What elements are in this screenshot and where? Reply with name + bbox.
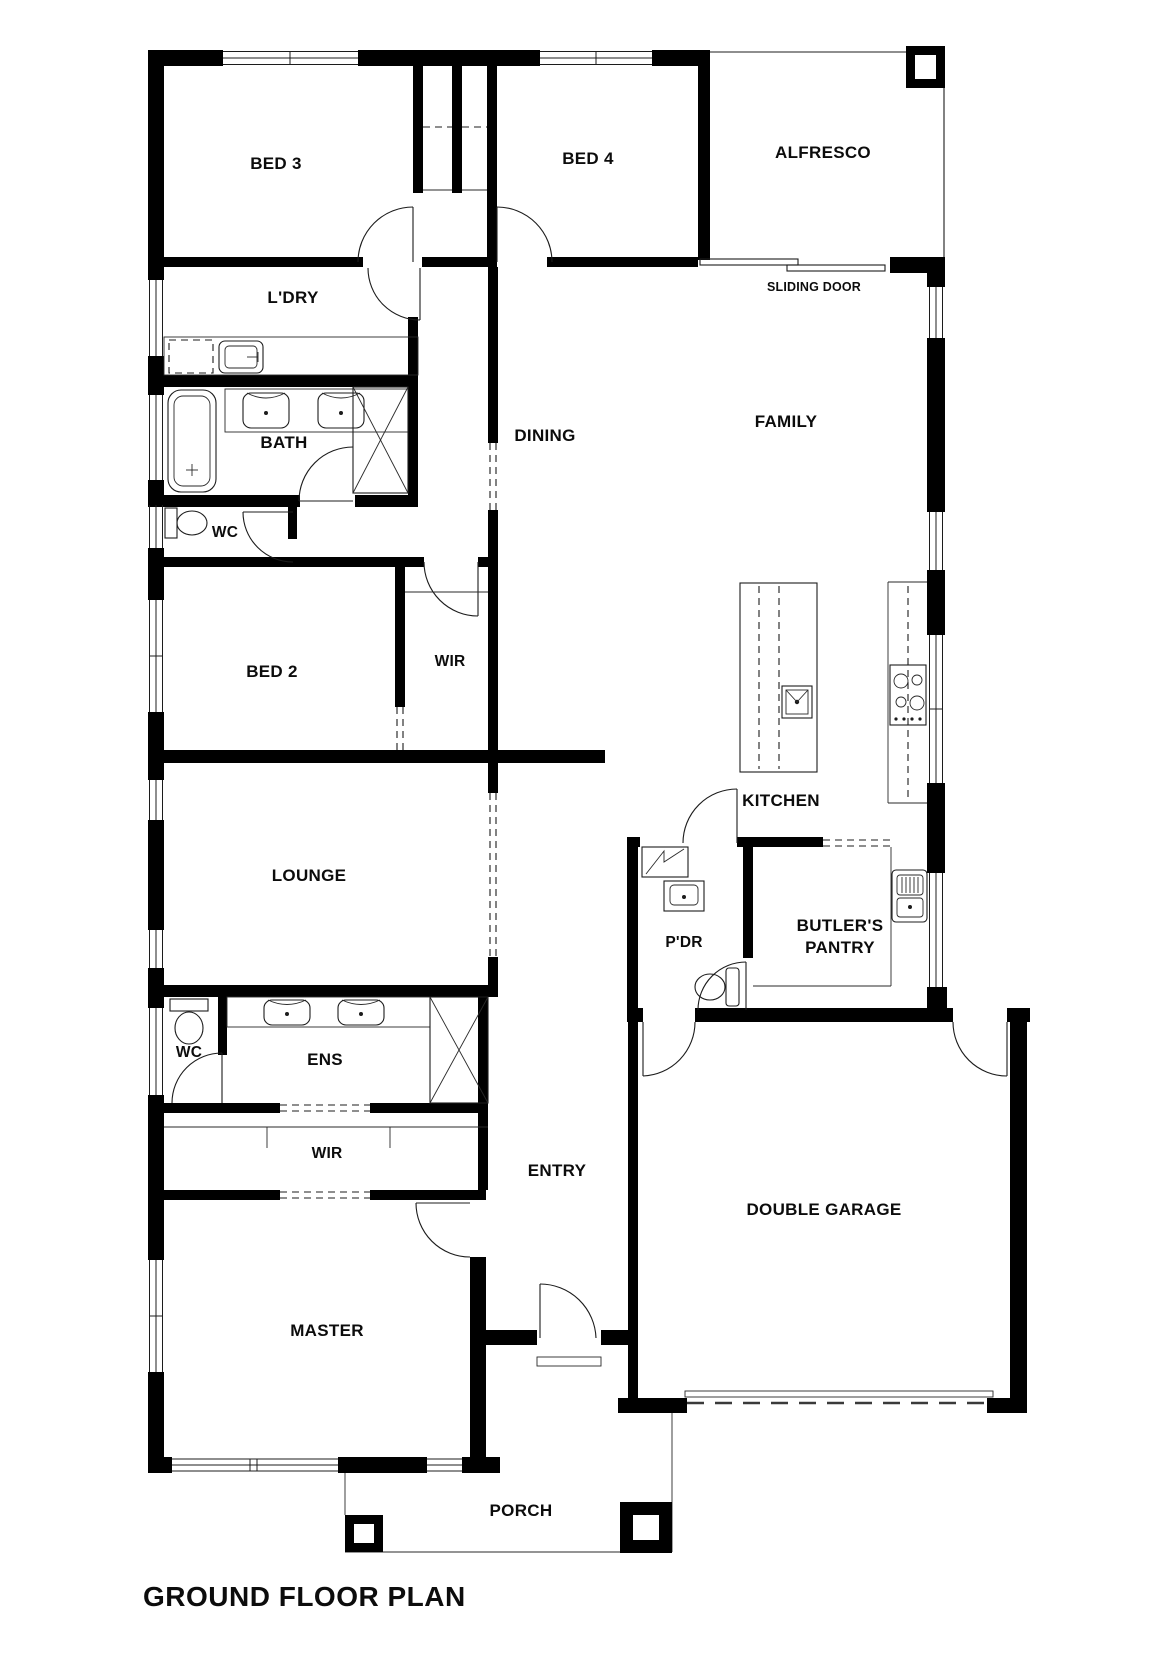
room-label-dining: DINING: [514, 426, 575, 445]
room-label-garage: DOUBLE GARAGE: [746, 1200, 901, 1219]
room-label-wc-lower: WC: [176, 1044, 202, 1061]
room-label-powder: P'DR: [665, 934, 702, 951]
room-label-bed4: BED 4: [562, 149, 614, 168]
room-label-kitchen: KITCHEN: [742, 791, 820, 810]
room-label-butlers-1: BUTLER'S: [797, 916, 884, 935]
plan-title: GROUND FLOOR PLAN: [143, 1581, 466, 1612]
room-label-alfresco: ALFRESCO: [775, 143, 871, 162]
room-label-master: MASTER: [290, 1321, 364, 1340]
room-label-porch: PORCH: [490, 1501, 553, 1520]
room-label-laundry: L'DRY: [267, 288, 319, 307]
ground-floor-plan: BED 3 BED 4 ALFRESCO SLIDING DOOR L'DRY …: [0, 0, 1170, 1654]
room-label-wir-lower: WIR: [312, 1145, 343, 1162]
room-label-bath: BATH: [260, 433, 307, 452]
room-label-entry: ENTRY: [528, 1161, 587, 1180]
annotation-sliding-door: SLIDING DOOR: [767, 280, 861, 294]
room-label-family: FAMILY: [755, 412, 818, 431]
room-label-bed2: BED 2: [246, 662, 298, 681]
room-label-wc-upper: WC: [212, 524, 238, 541]
room-label-ensuite: ENS: [307, 1050, 343, 1069]
room-label-wir-upper: WIR: [435, 653, 466, 670]
room-label-butlers-2: PANTRY: [805, 938, 875, 957]
room-label-bed3: BED 3: [250, 154, 302, 173]
room-label-lounge: LOUNGE: [272, 866, 347, 885]
